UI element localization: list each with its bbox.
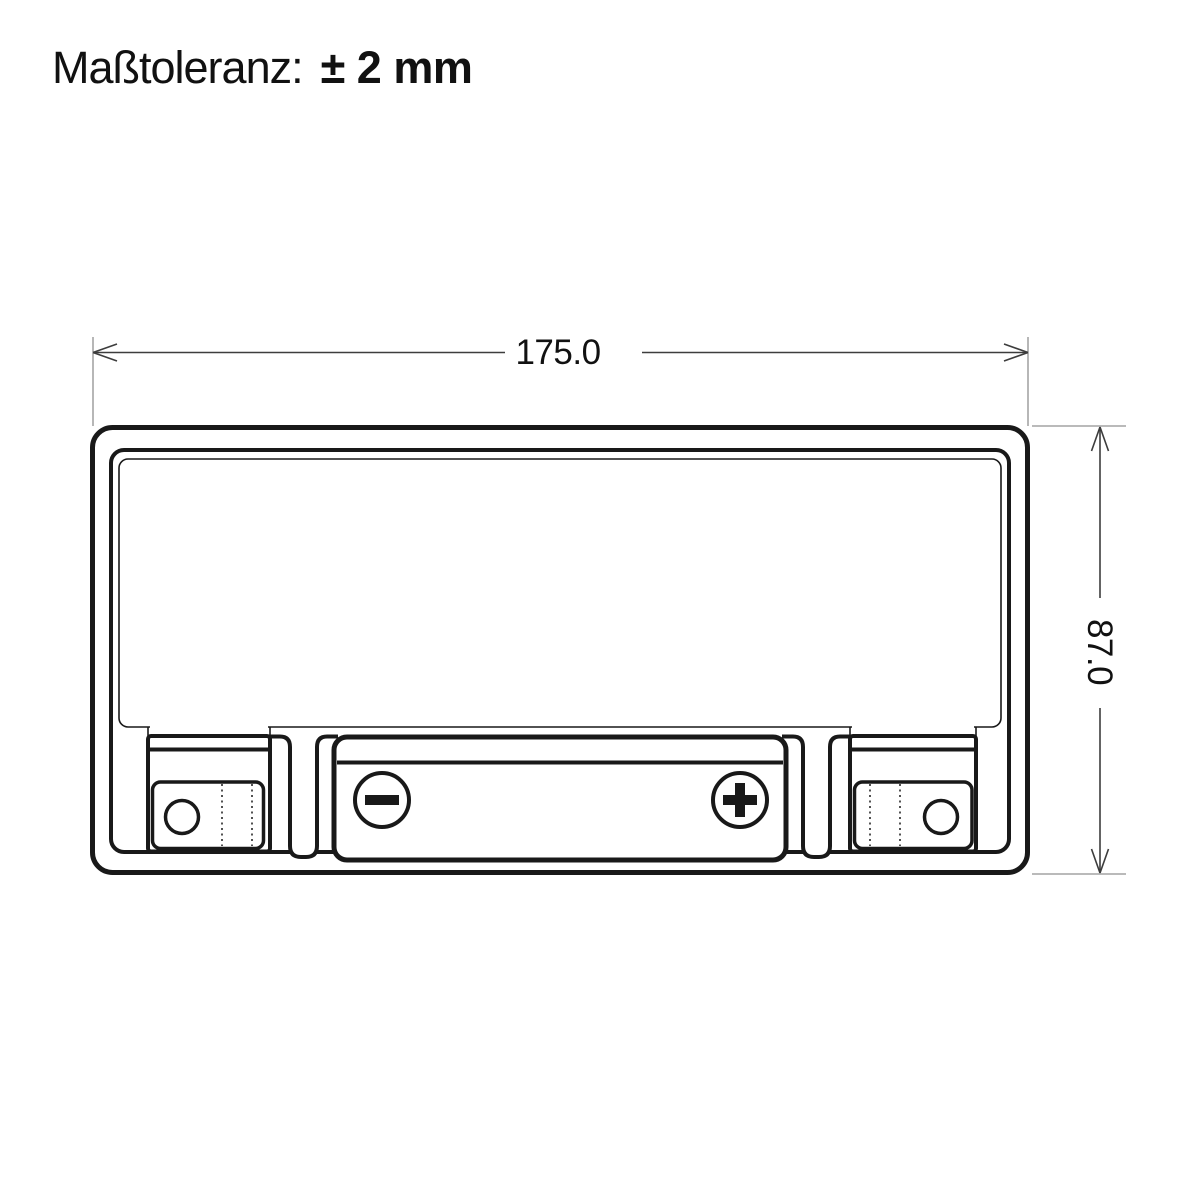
negative-terminal-bar [365,795,399,805]
negative-terminal-icon [355,773,409,827]
width-dimension-label: 175.0 [515,333,600,372]
face-line-mask-right [852,722,974,732]
face-line-mask-left [150,722,268,732]
battery-technical-drawing: 175.0 87.0 [0,0,1200,1200]
left-mounting-hole [166,801,199,834]
right-mounting-hole [925,801,958,834]
left-foot-block [148,736,270,852]
height-dimension: 87.0 [1032,426,1126,874]
width-dimension: 175.0 [93,333,1028,426]
positive-terminal-vbar [735,783,745,817]
right-foot-block [850,736,976,852]
positive-terminal-icon [713,773,767,827]
height-dimension-label: 87.0 [1080,619,1119,685]
terminal-recess-panel [334,737,786,860]
